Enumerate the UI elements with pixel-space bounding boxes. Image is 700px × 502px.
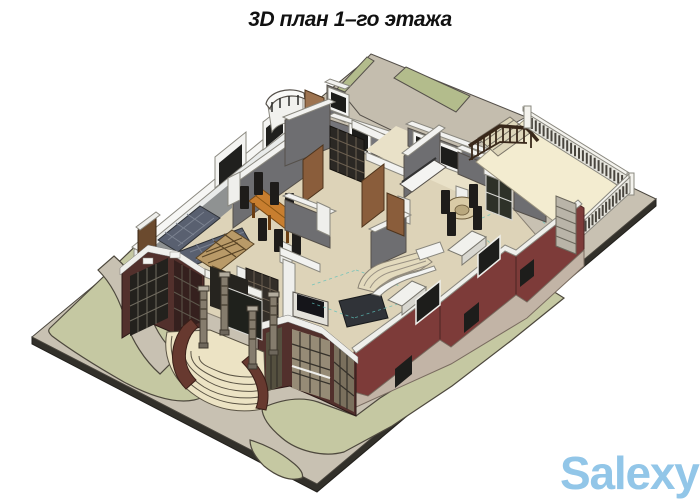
svg-text:Salexy: Salexy bbox=[560, 447, 700, 499]
svg-text:3D план 1–го этажа: 3D план 1–го этажа bbox=[248, 8, 452, 31]
